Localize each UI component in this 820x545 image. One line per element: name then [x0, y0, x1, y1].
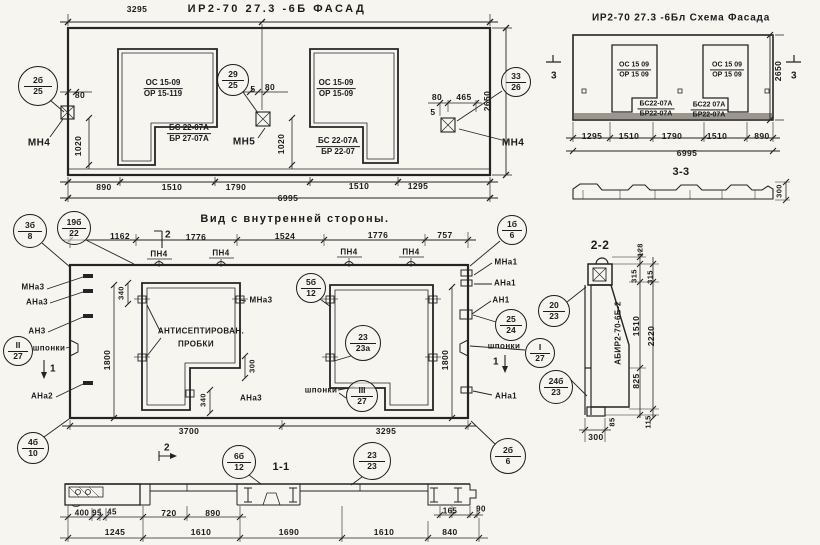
balloon-20-23: 2023 [538, 295, 570, 327]
balloon-4b-10: 4б10 [17, 432, 49, 464]
interior-flag-1-right: 1 [493, 357, 499, 368]
section22-dim-300: 300 [588, 432, 603, 442]
facade-window-right-mark: ОС 15-09ОР 15-09 [317, 78, 356, 100]
interior-flag-2-top: 2 [165, 230, 171, 241]
section11-dim-95: 95 [92, 509, 102, 518]
section11-dim-1610-b: 1610 [374, 527, 395, 537]
interior-dim-1524: 1524 [275, 231, 296, 241]
balloon-33-26: 3326 [501, 67, 531, 97]
interior-mark-ana3-left: АНа3 [26, 298, 48, 307]
schema-flag-3-right: 3 [791, 71, 797, 82]
balloon-roman3-27: III27 [346, 380, 378, 412]
balloon-25-24: 2524 [495, 309, 527, 341]
interior-dim-1800-right: 1800 [440, 350, 450, 371]
interior-mark-mna1-top: МНа1 [495, 258, 518, 267]
schema-flag-3-left: 3 [551, 71, 557, 82]
balloon-3b-8: 3б8 [13, 214, 47, 248]
schema-window-right-mark: ОС 15 09ОР 15 09 [710, 60, 744, 79]
schema-window-left-mark: ОС 15 09ОР 15 09 [617, 60, 651, 79]
interior-mark-pn4-c: ПН4 [340, 248, 357, 257]
facade-view-lines [50, 14, 512, 202]
balloon-2b-6: 2б6 [490, 438, 526, 474]
facade-window-left-mark: ОС 15-09ОР 15-119 [144, 78, 183, 100]
interior-mark-pn4-a: ПН4 [150, 250, 167, 259]
interior-dim-340-bottom: 340 [199, 393, 208, 407]
interior-mark-an3: АН3 [28, 327, 45, 336]
schema-dim-1295: 1295 [582, 131, 603, 141]
section11-dim-890: 890 [205, 508, 220, 518]
interior-dim-3700: 3700 [179, 426, 200, 436]
interior-mark-mna3-mid: МНа3 [250, 296, 273, 305]
interior-view-title: Вид с внутренней стороны. [200, 213, 389, 225]
facade-dim-80-left: 80 [75, 90, 85, 100]
drawing-linework [0, 0, 820, 545]
interior-mark-pn4-d: ПН4 [402, 248, 419, 257]
facade-dim-5-right: 5 [430, 107, 435, 117]
section22-dim-128: 128 [636, 243, 645, 257]
balloon-1b-6: 1б6 [497, 215, 527, 245]
interior-flag-1-left: 1 [50, 364, 56, 375]
interior-label-shponki-mid: шпонки [305, 386, 338, 395]
facade-mark-mn4-left: МН4 [28, 138, 50, 149]
section11-dim-165: 165 [443, 507, 458, 516]
balloon-23-23a: 2323а [345, 325, 381, 361]
interior-view-lines [41, 231, 525, 485]
interior-dim-3295: 3295 [376, 426, 397, 436]
facade-dim-1790: 1790 [226, 182, 247, 192]
interior-mark-ana1-bottom: АНа1 [495, 392, 517, 401]
schema-title: ИР2-70 27.3 -6Бл Схема Фасада [592, 13, 770, 24]
section22-marking: АБИР2-70-6Б-2 [614, 301, 623, 365]
interior-note-antiseptic-2: ПРОБКИ [178, 340, 214, 349]
interior-mark-pn4-b: ПН4 [212, 249, 229, 258]
interior-dim-1776-a: 1776 [186, 232, 207, 242]
panel-drawing-sheet: ИР2-70 27.3 -6Б ФАСАД ИР2-70 27.3 -6Бл С… [0, 0, 820, 545]
facade-title: ИР2-70 27.3 -6Б ФАСАД [188, 3, 367, 15]
interior-label-shponki-right: шпонки [488, 342, 521, 351]
interior-dim-1776-b: 1776 [368, 230, 389, 240]
section22-dim-1510: 1510 [631, 316, 641, 337]
facade-dim-1020-mid: 1020 [276, 134, 286, 155]
section22-dim-825: 825 [631, 373, 641, 388]
section22-dim-115: 115 [644, 415, 653, 428]
balloon-23-23: 2323 [353, 442, 391, 480]
facade-dim-80-mid: 80 [265, 82, 275, 92]
interior-mark-ana3-mid: АНа3 [240, 394, 262, 403]
section22-title: 2-2 [591, 238, 610, 252]
facade-dim-5-mid: 5 [250, 84, 255, 94]
balloon-19b-22: 19б22 [57, 211, 91, 245]
section11-title: 1-1 [272, 461, 289, 473]
interior-mark-ana1-top: АНа1 [494, 279, 516, 288]
section22-dim-315-a: 315 [630, 269, 639, 283]
balloon-29-25: 2925 [217, 64, 249, 96]
facade-dim-1020-left: 1020 [73, 136, 83, 157]
section11-dim-1245: 1245 [105, 527, 126, 537]
section22-dim-2220: 2220 [646, 326, 656, 347]
anchor-symbols [61, 106, 455, 132]
balloon-2b-25: 2б25 [18, 66, 58, 106]
facade-dim-890: 890 [96, 182, 111, 192]
schema-dim-890: 890 [754, 131, 769, 141]
section11-dim-1610-a: 1610 [191, 527, 212, 537]
balloon-5b-12: 5б12 [296, 273, 326, 303]
interior-dim-340-top: 340 [117, 286, 126, 300]
interior-flag-2-bottom: 2 [164, 443, 170, 454]
schema-lintel-left-mark: БС22-07АБР22-07А [638, 99, 675, 118]
schema-dim-6995: 6995 [677, 148, 698, 158]
section11-dim-840: 840 [442, 527, 457, 537]
section11-dim-45: 45 [107, 508, 117, 517]
section-3-3-lines [573, 179, 790, 203]
interior-mark-an1: АН1 [492, 296, 509, 305]
schema-dim-1790: 1790 [662, 131, 683, 141]
section22-dim-85: 85 [608, 417, 617, 426]
facade-mark-mn5: МН5 [233, 137, 255, 148]
balloon-6b-12: 6б12 [222, 445, 256, 479]
section33-title: 3-3 [672, 166, 689, 178]
section33-dim-300: 300 [775, 184, 784, 198]
interior-dim-300-step: 300 [248, 359, 257, 373]
facade-dim-80-right: 80 [432, 92, 442, 102]
section11-dim-400: 400 [75, 509, 90, 518]
section11-dim-90: 90 [476, 505, 486, 514]
facade-dim-1295: 1295 [408, 181, 429, 191]
interior-mark-mna3-left: МНа3 [22, 283, 45, 292]
schema-lintel-right-mark: БС22 07АБР22-07А [691, 100, 728, 119]
facade-dim-465: 465 [456, 92, 471, 102]
balloon-24b-23: 24б23 [539, 370, 573, 404]
schema-dim-2650: 2650 [773, 61, 783, 82]
facade-dim-6995: 6995 [278, 193, 299, 203]
interior-dim-757: 757 [437, 230, 452, 240]
facade-lintel-right-mark: БС 22-07АБР 22-07 [316, 136, 360, 158]
facade-dim-1510-b: 1510 [349, 181, 370, 191]
interior-dim-1800-left: 1800 [102, 350, 112, 371]
facade-dim-2650: 2650 [482, 91, 492, 112]
facade-lintel-left-mark: БС 22-07АБР 27-07А [167, 123, 211, 145]
facade-dim-1510-a: 1510 [162, 182, 183, 192]
schema-dim-1510-a: 1510 [619, 131, 640, 141]
section11-dim-720: 720 [161, 508, 176, 518]
interior-label-shponki-left: шпонки [33, 344, 66, 353]
balloon-roman1-27: I27 [525, 338, 555, 368]
interior-note-antiseptic-1: АНТИСЕПТИРОВАН. [158, 327, 244, 336]
schema-dim-1510-b: 1510 [707, 131, 728, 141]
facade-mark-mn4-right: МН4 [502, 138, 524, 149]
section11-dim-1690: 1690 [279, 527, 300, 537]
balloon-roman2-27: II27 [3, 336, 33, 366]
interior-dim-1162: 1162 [110, 231, 130, 241]
facade-dim-3295: 3295 [127, 4, 148, 14]
edge-plug-marks [83, 274, 93, 385]
interior-mark-ana2: АНа2 [31, 392, 53, 401]
section22-dim-315-b: 315 [646, 270, 655, 284]
